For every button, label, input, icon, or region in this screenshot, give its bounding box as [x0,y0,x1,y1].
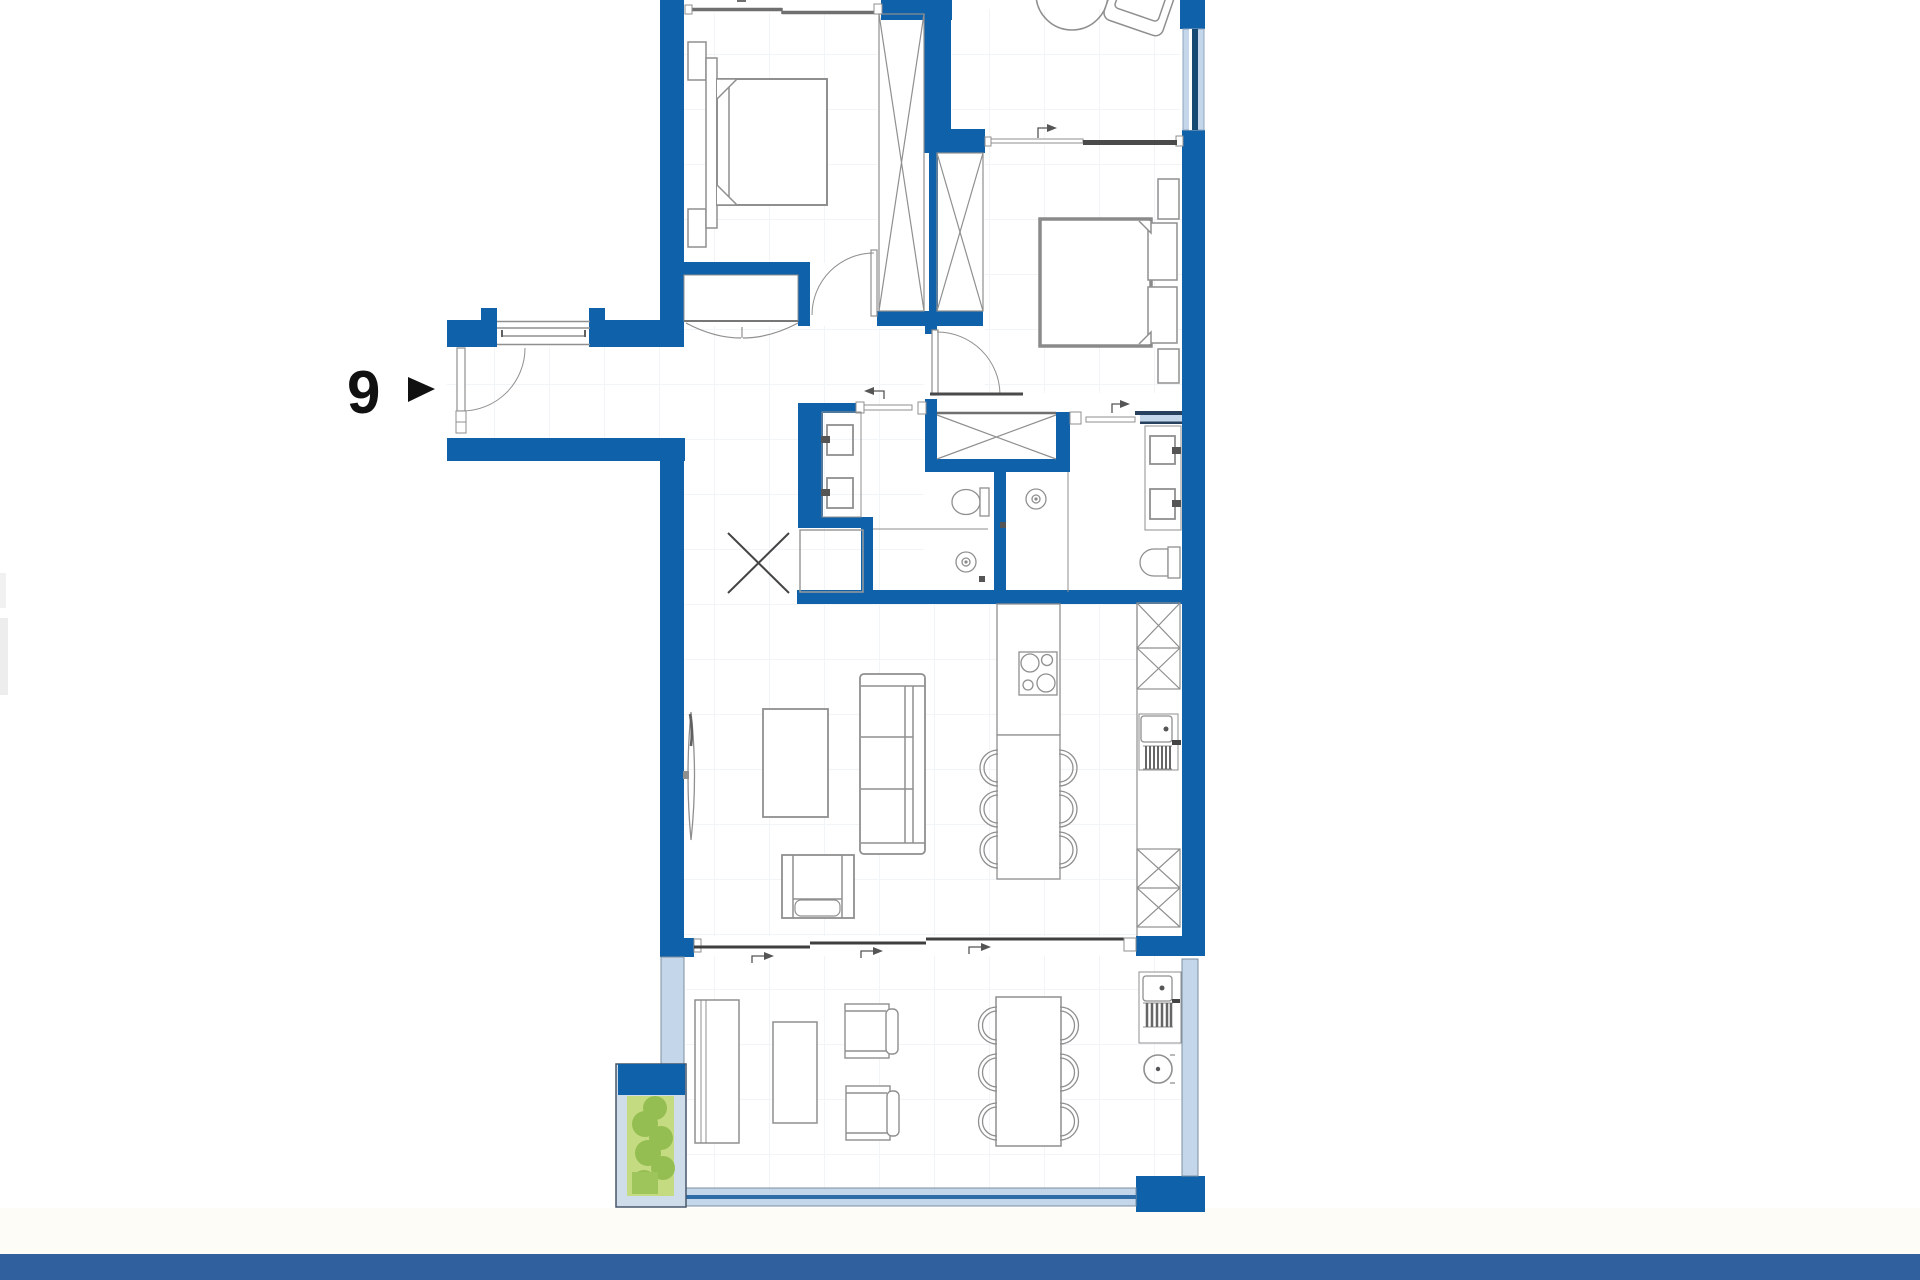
svg-text:9: 9 [347,359,380,426]
